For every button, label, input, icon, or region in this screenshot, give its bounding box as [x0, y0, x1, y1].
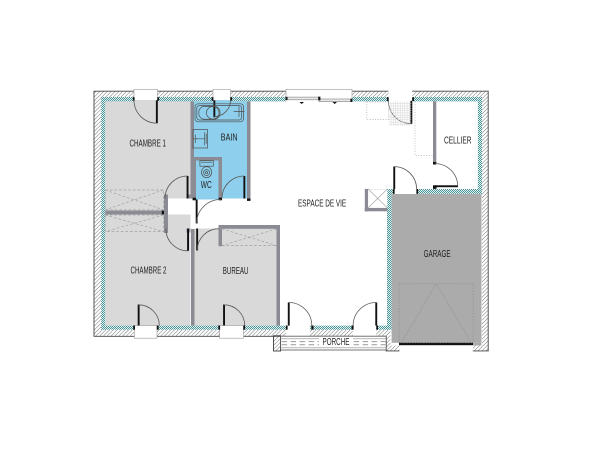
svg-text:CELLIER: CELLIER	[444, 136, 472, 147]
svg-text:BAIN: BAIN	[221, 133, 238, 144]
svg-text:ESPACE DE VIE: ESPACE DE VIE	[298, 198, 346, 209]
svg-text:BUREAU: BUREAU	[223, 266, 249, 277]
svg-text:PORCHE: PORCHE	[323, 337, 350, 348]
svg-text:GARAGE: GARAGE	[424, 249, 451, 260]
svg-text:CHAMBRE 2: CHAMBRE 2	[131, 265, 167, 276]
svg-text:WC: WC	[201, 180, 212, 191]
svg-text:CHAMBRE 1: CHAMBRE 1	[130, 138, 167, 149]
